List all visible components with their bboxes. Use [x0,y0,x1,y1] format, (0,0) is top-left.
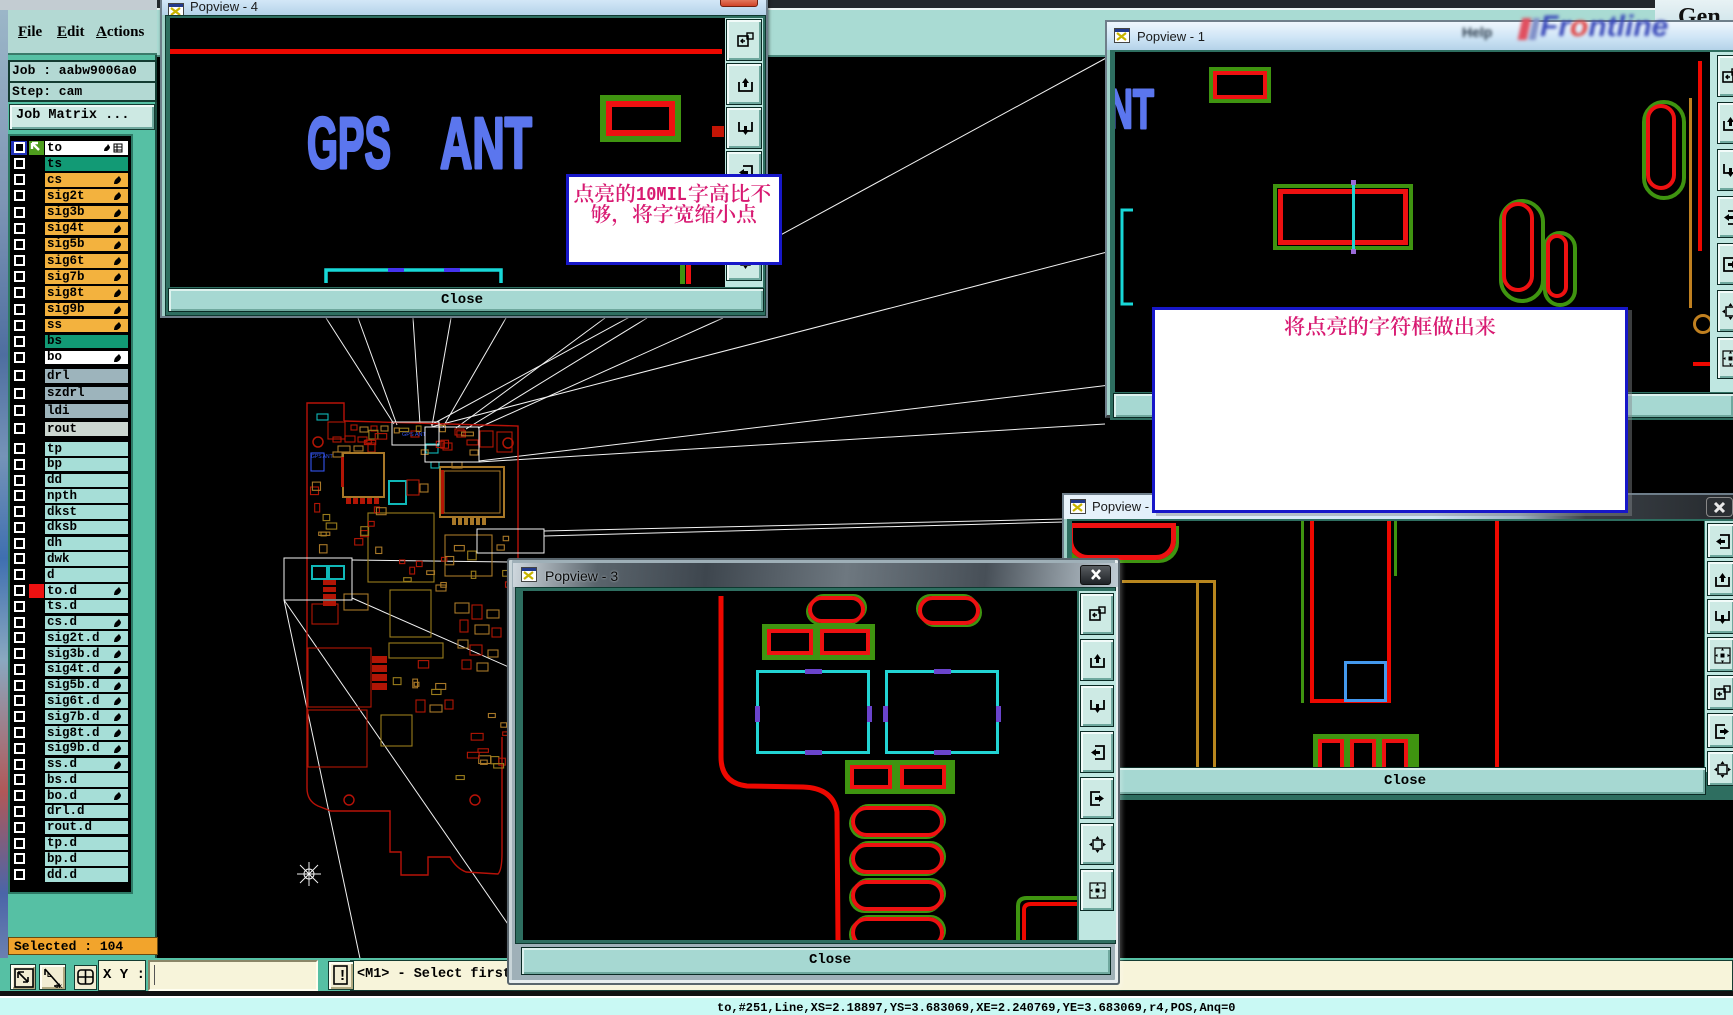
svg-text:L: L [47,972,52,979]
svg-text:ok: ok [55,984,63,990]
svg-text:!: ! [338,968,347,985]
